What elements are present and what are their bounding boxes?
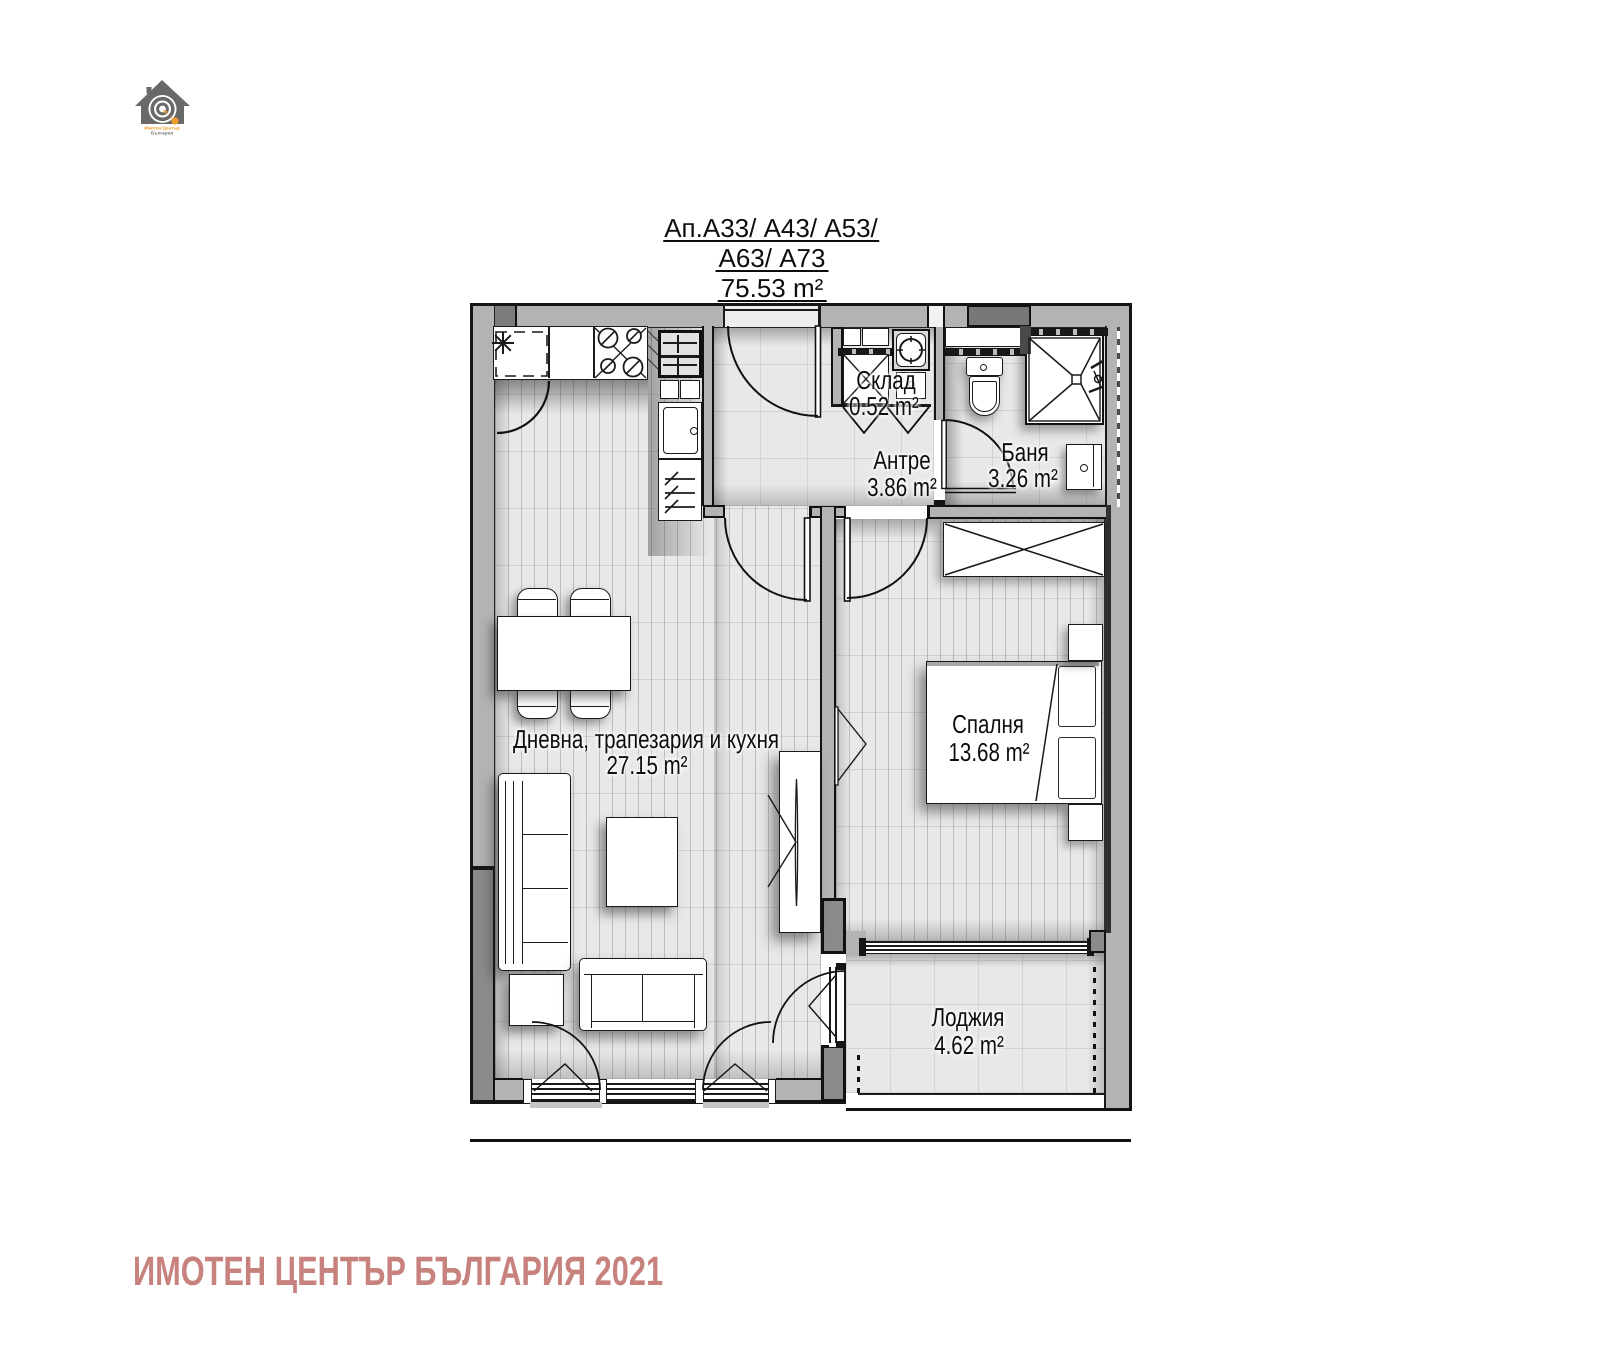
svg-text:България: България <box>151 131 174 136</box>
